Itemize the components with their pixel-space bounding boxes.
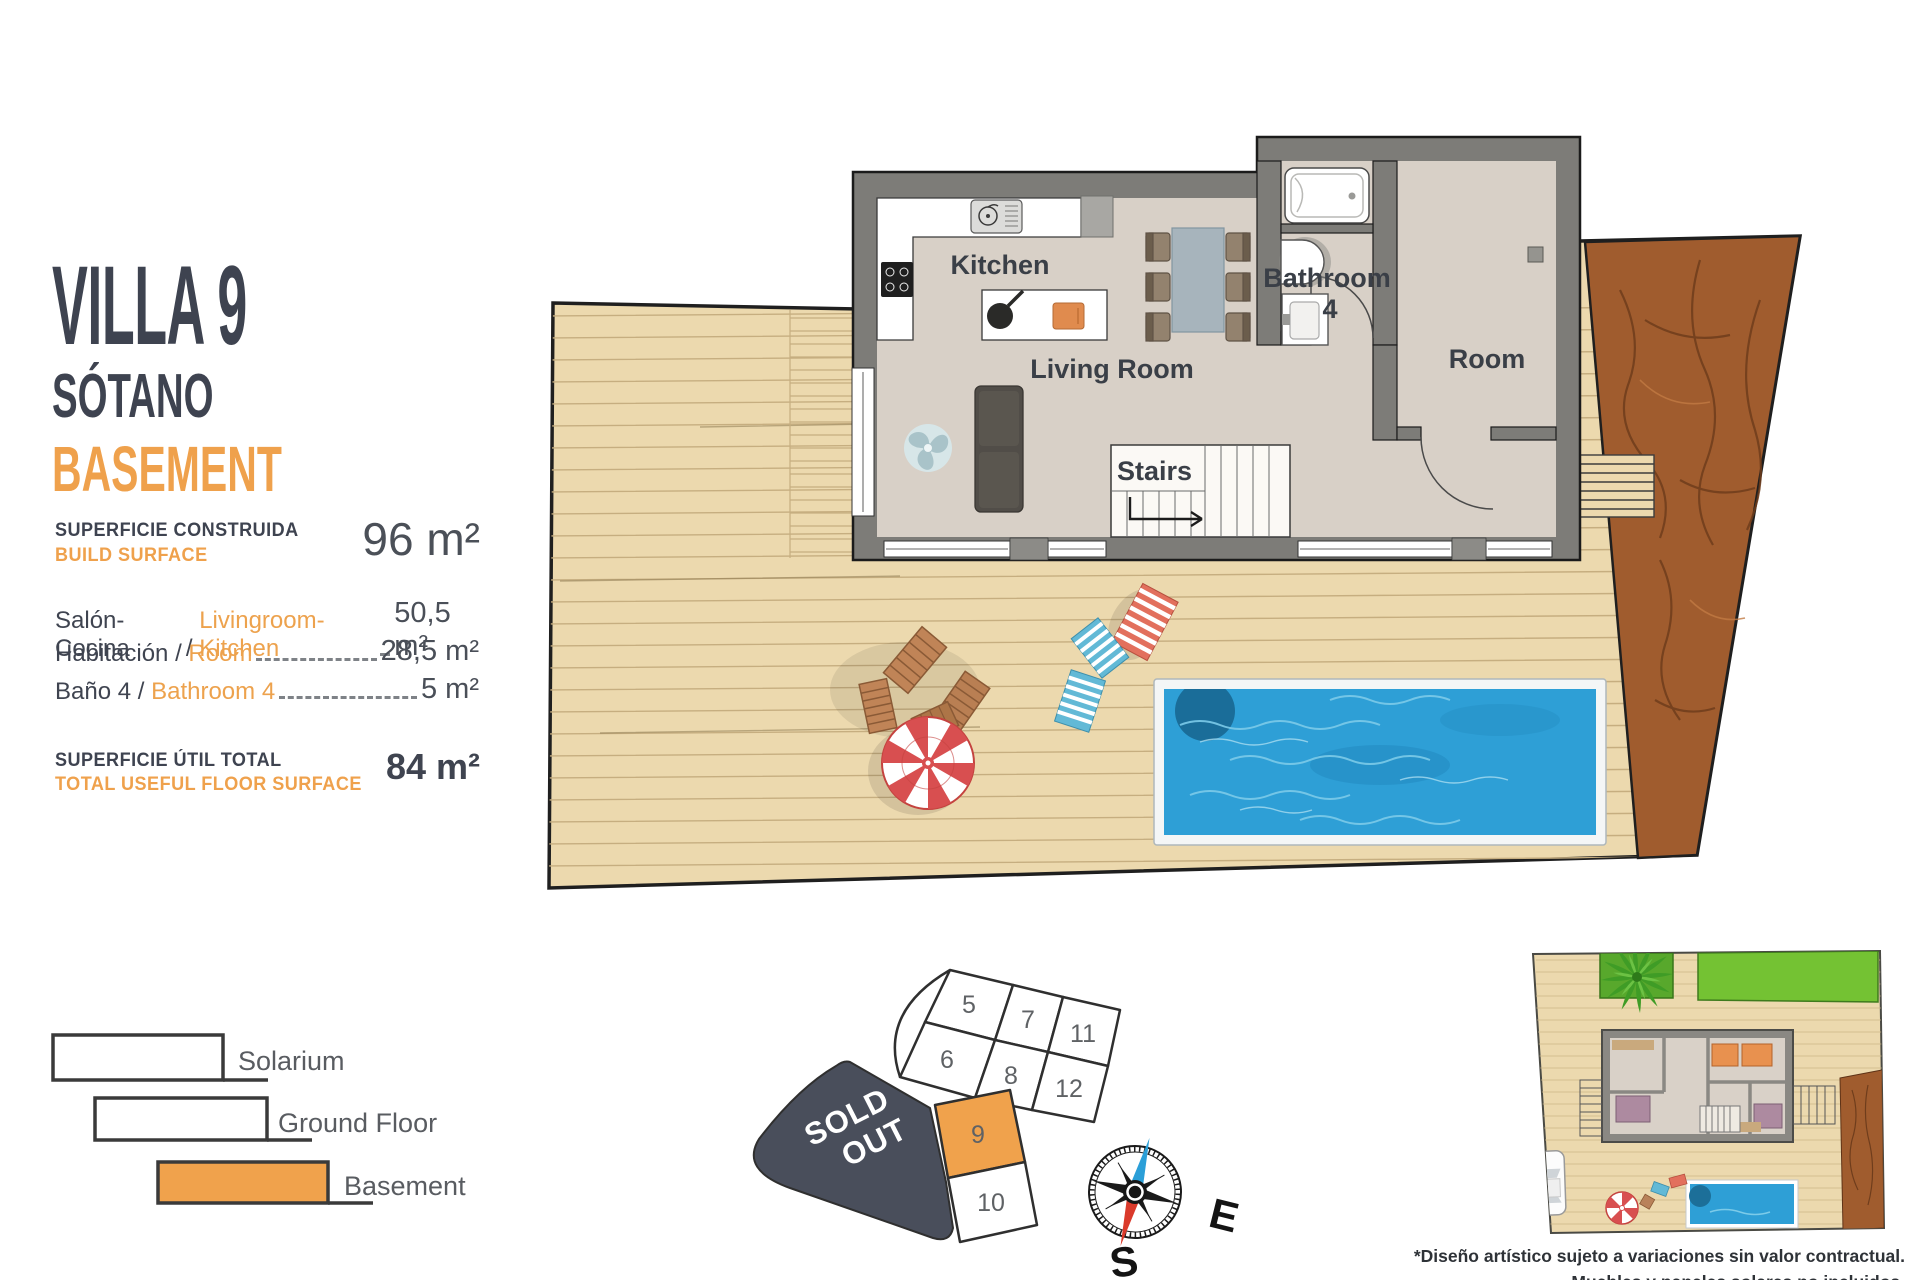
legend-label-solarium: Solarium [238, 1046, 345, 1076]
bathroom-label: Bathroom [1263, 263, 1391, 293]
floor-name-en: BASEMENT [52, 437, 282, 501]
legend-label-ground-floor: Ground Floor [278, 1108, 437, 1138]
dashed-leader [256, 658, 376, 661]
room-marker [1528, 247, 1543, 262]
row-value: 28,5 m² [381, 635, 479, 668]
cutting-board-icon [1053, 303, 1084, 329]
disclaimer-line1: *Diseño artístico sujeto a variaciones s… [1414, 1243, 1905, 1269]
total-label-es: SUPERFICIE ÚTIL TOTAL [55, 750, 282, 772]
villa-title: VILLA 9 [52, 250, 247, 362]
counter-column [1081, 196, 1113, 237]
bathroom-number-label: 4 [1322, 294, 1337, 324]
row-separator: / [168, 640, 188, 668]
exterior-steps [1580, 455, 1654, 517]
dashed-leader [279, 696, 417, 699]
stairs-label: Stairs [1117, 456, 1192, 486]
legend-box-ground-floor [95, 1098, 267, 1140]
plot-num-9: 9 [971, 1121, 985, 1149]
compass-icon: E S [1076, 1126, 1243, 1280]
mini-stairs [1700, 1106, 1740, 1132]
mini-pool [1686, 1180, 1798, 1228]
plot-num-6: 6 [940, 1046, 954, 1074]
living-room-label: Living Room [1030, 354, 1194, 384]
pool [1154, 679, 1606, 845]
mini-dirt [1840, 1070, 1884, 1230]
disclaimer-line2: Muebles y paneles solares no incluidos. [1414, 1269, 1905, 1280]
plot-num-12: 12 [1055, 1075, 1083, 1103]
dining-area [1146, 228, 1250, 341]
mini-lawn [1698, 951, 1878, 1002]
mini-parasol [1606, 1192, 1638, 1224]
legend-box-solarium [53, 1035, 223, 1080]
brochure-page: Kitchen Living Room Bathroom 4 Room Stai… [0, 0, 1920, 1280]
plot-num-8: 8 [1004, 1062, 1018, 1090]
legend-box-basement [158, 1162, 328, 1203]
row-separator: / [131, 678, 151, 706]
row-label-en: Bathroom 4 [151, 678, 275, 706]
house: Kitchen Living Room Bathroom 4 Room Stai… [852, 137, 1580, 560]
compass-south-label: S [1107, 1236, 1141, 1280]
surface-row-bathroom: Baño 4 / Bathroom 4 5 m² [55, 673, 479, 706]
disclaimer: *Diseño artístico sujeto a variaciones s… [1414, 1243, 1905, 1280]
plot-map: SOLD OUT 5 7 11 6 8 12 9 10 [754, 970, 1120, 1242]
total-value: 84 m² [300, 746, 480, 788]
dining-table [1172, 228, 1224, 332]
plot-num-7: 7 [1021, 1006, 1035, 1034]
bathroom-sink-icon [1282, 294, 1328, 345]
plot-num-5: 5 [962, 991, 976, 1019]
row-label-en: Room [188, 640, 252, 668]
row-label-es: Baño 4 [55, 678, 131, 706]
mini-site-plan [1533, 941, 1884, 1233]
mini-house [1602, 1030, 1793, 1142]
floor-name-es: SÓTANO [52, 366, 214, 428]
mini-car [1536, 1151, 1566, 1216]
bathtub-icon [1285, 168, 1369, 223]
room-label: Room [1449, 344, 1526, 374]
ceiling-fan-icon [904, 424, 952, 472]
kitchen-label: Kitchen [950, 250, 1049, 280]
build-surface-label-es: SUPERFICIE CONSTRUIDA [55, 520, 299, 542]
sink-icon [971, 200, 1022, 233]
kitchen-island [982, 290, 1107, 340]
sofa [975, 386, 1023, 512]
cooktop-icon [881, 262, 913, 297]
pool-step [1175, 681, 1235, 741]
surface-row-room: Habitación / Room 28,5 m² [55, 635, 479, 668]
plot-num-11: 11 [1070, 1020, 1096, 1048]
plot-num-10: 10 [977, 1189, 1005, 1217]
build-surface-value: 96 m² [300, 512, 480, 566]
floor-legend: Solarium Ground Floor Basement [53, 1035, 466, 1203]
build-surface-label-en: BUILD SURFACE [55, 545, 208, 567]
row-label-es: Habitación [55, 640, 168, 668]
row-value: 5 m² [421, 673, 479, 706]
compass-east-label: E [1205, 1189, 1244, 1241]
legend-label-basement: Basement [344, 1171, 466, 1201]
